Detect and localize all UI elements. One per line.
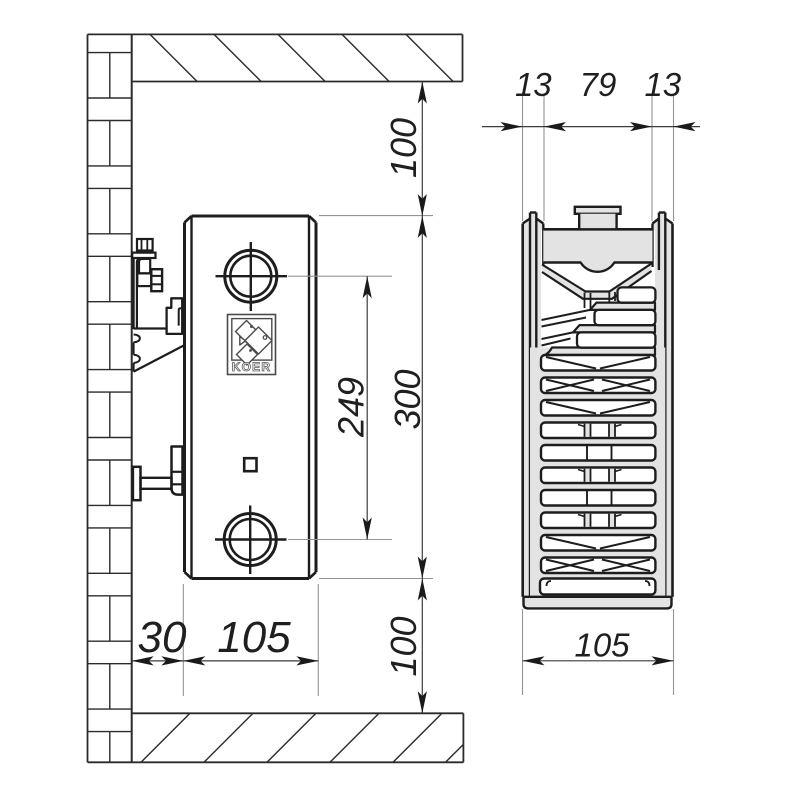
svg-text:300: 300 xyxy=(387,369,428,429)
svg-text:13: 13 xyxy=(515,66,552,103)
svg-text:100: 100 xyxy=(383,616,424,676)
svg-text:105: 105 xyxy=(574,627,630,664)
svg-text:100: 100 xyxy=(383,118,424,178)
svg-text:79: 79 xyxy=(580,66,617,103)
svg-text:13: 13 xyxy=(644,66,681,103)
svg-text:30: 30 xyxy=(138,613,187,662)
svg-text:105: 105 xyxy=(217,613,291,662)
svg-text:249: 249 xyxy=(331,377,372,438)
svg-text:KOER: KOER xyxy=(232,360,271,374)
